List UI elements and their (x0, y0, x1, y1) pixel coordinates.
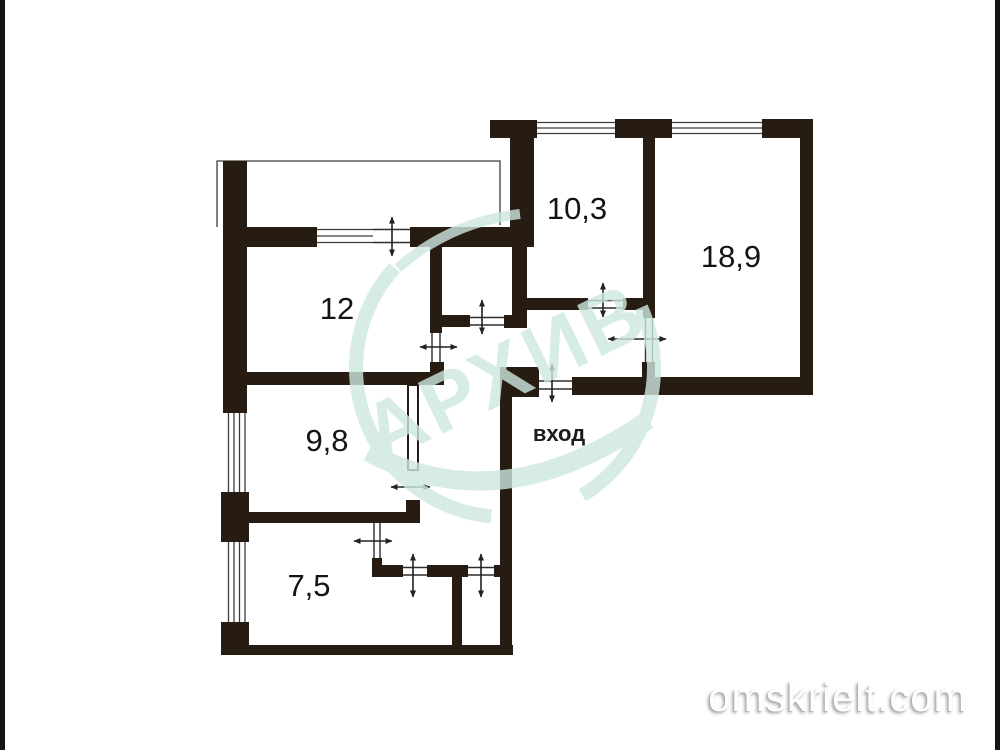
room-label-189: 18,9 (701, 239, 761, 274)
photo-edge-left (0, 0, 5, 750)
room-label-12: 12 (320, 291, 354, 326)
room-label-103: 10,3 (547, 191, 607, 226)
entrance-label: вход (533, 421, 585, 446)
bath-a-door-jamb (403, 568, 427, 576)
floorplan-page: АРХИВ 12 10,3 18,9 9,8 7,5 вход omskriel… (0, 0, 1000, 750)
window-symbol-left-1 (229, 413, 246, 492)
room-label-98: 9,8 (305, 423, 348, 458)
window-symbol-top-b (672, 123, 762, 134)
window-symbol-top-a (537, 123, 615, 134)
floorplan-drawing: АРХИВ 12 10,3 18,9 9,8 7,5 вход (0, 0, 1000, 750)
site-watermark: omskrielt.com (708, 676, 968, 721)
window-symbol-room12 (317, 230, 373, 243)
balcony-outline (217, 161, 500, 227)
room-label-75: 7,5 (287, 568, 330, 603)
photo-edge-right (995, 0, 1000, 750)
window-symbol-left-2 (229, 542, 246, 622)
